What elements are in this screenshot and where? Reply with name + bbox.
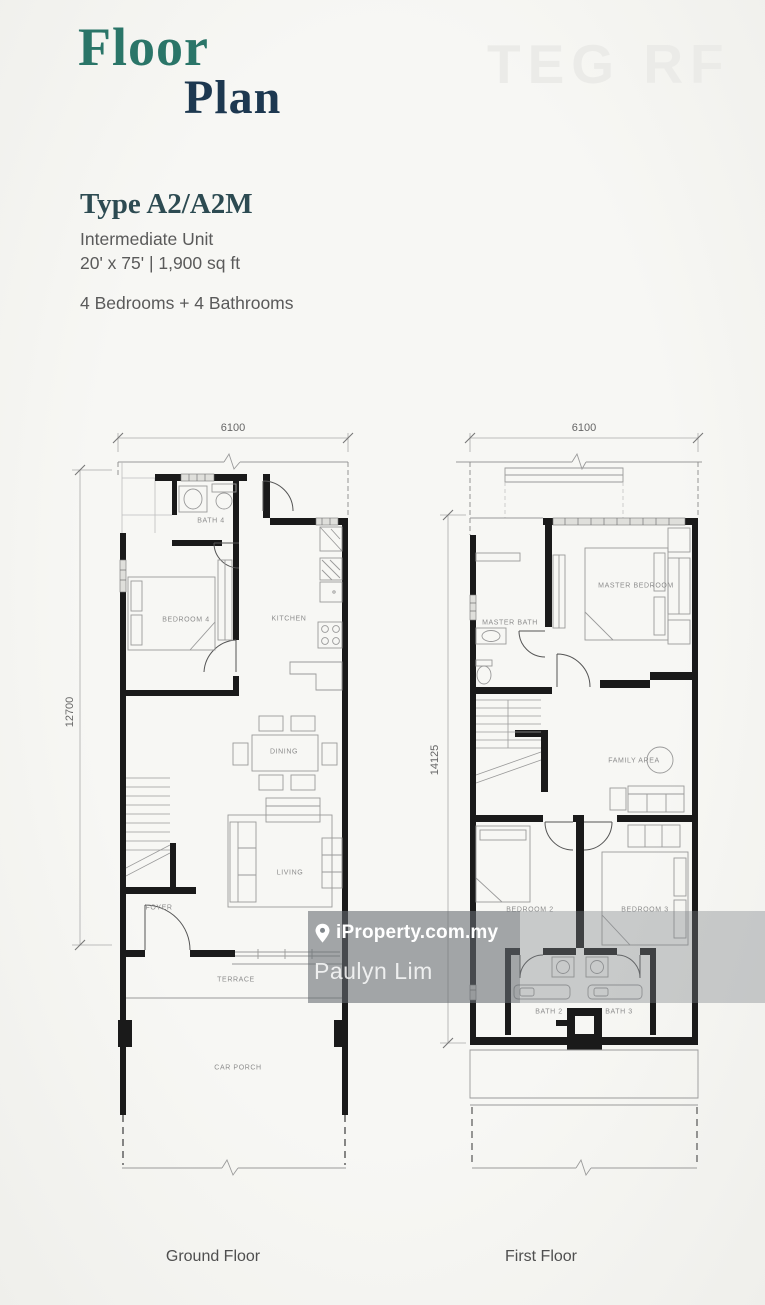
room-label-foyer: FOYER [145,905,172,912]
unit-rooms-summary: 4 Bedrooms + 4 Bathrooms [80,293,294,314]
room-label-dining: DINING [270,749,298,756]
room-label-bedroom4: BEDROOM 4 [162,617,209,624]
unit-category: Intermediate Unit [80,227,213,251]
room-label-bath3: BATH 3 [605,1009,633,1016]
unit-type-heading: Type A2/A2M [80,188,253,221]
first-floor-plan [440,433,703,1175]
room-label-kitchen: KITCHEN [272,616,307,623]
page-title-plan: Plan [184,70,281,125]
location-pin-icon [314,923,331,944]
room-label-living: LIVING [277,870,304,877]
first-height-dimension: 14125 [429,745,441,776]
iproperty-brand-text: iProperty.com.my [336,922,498,944]
iproperty-brand: iProperty.com.my [314,922,498,944]
room-label-family-area: FAMILY AREA [608,758,659,765]
floor-plan-page: { "header": { "title_line1": "Floor", "t… [0,0,765,1305]
page-title-floor: Floor [78,16,209,78]
room-label-bath2: BATH 2 [535,1009,563,1016]
developer-watermark-text: TEG RF [487,32,731,96]
room-label-car-porch: CAR PORCH [214,1065,261,1072]
room-label-master-bath: MASTER BATH [482,620,538,627]
room-label-bath4: BATH 4 [197,518,225,525]
ground-width-dimension: 6100 [221,422,245,434]
agent-name: Paulyn Lim [314,958,433,985]
room-label-master-bedroom: MASTER BEDROOM [598,583,674,590]
ground-height-dimension: 12700 [64,697,76,728]
first-width-dimension: 6100 [572,422,596,434]
room-label-terrace: TERRACE [217,977,255,984]
ground-floor-plan [72,433,353,1175]
first-floor-caption: First Floor [505,1248,577,1266]
ground-floor-caption: Ground Floor [166,1248,260,1266]
unit-size: 20' x 75' | 1,900 sq ft [80,251,240,275]
